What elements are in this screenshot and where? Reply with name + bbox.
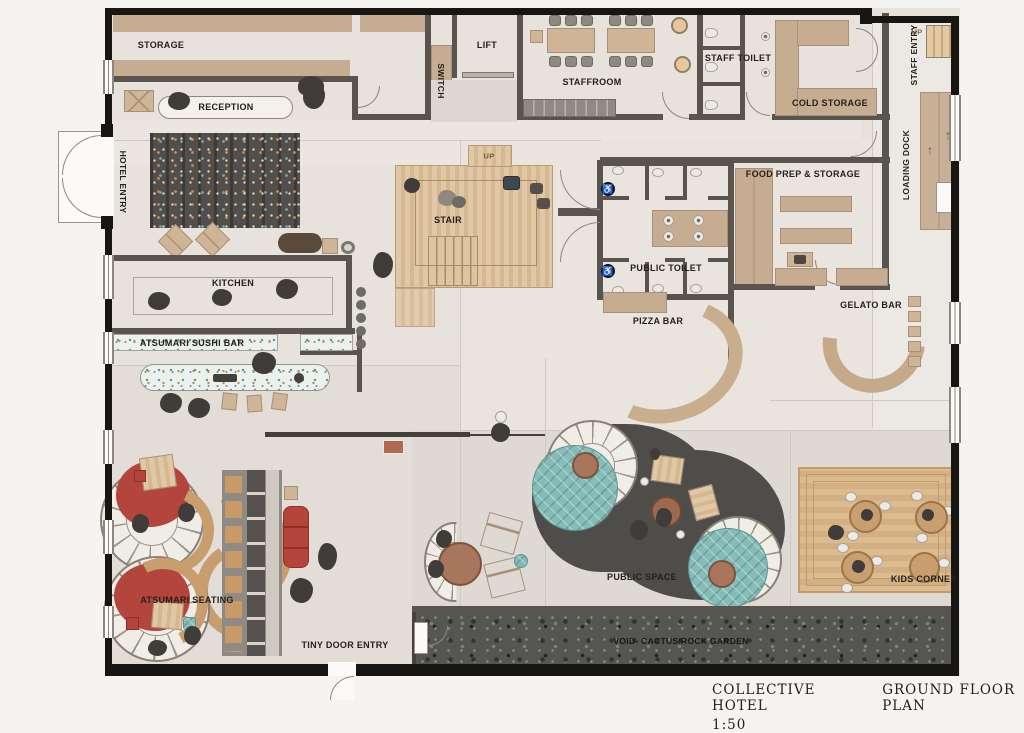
staffroom-table [607,28,655,53]
cushion [134,470,146,482]
toilet [690,284,702,293]
accessible-icon: ♿ [601,264,615,278]
toilet [612,166,624,175]
basin [693,215,704,226]
chair [565,56,577,67]
label-staffroom: STAFFROOM [562,77,621,87]
chair [609,56,621,67]
stall-wall [708,258,728,262]
red-sofa [283,506,309,568]
stall-wall [603,258,629,262]
floor-plan-page: { "title": { "project": "COLLECTIVE HOTE… [0,0,1024,724]
coldstorage-counter [797,20,849,46]
toilet [705,62,718,72]
stool [221,392,238,410]
label-kitchen: KITCHEN [212,278,254,288]
kids-chair [841,583,853,593]
chair [641,15,653,26]
label-sushi-bar: ATSUMARI SUSHI BAR [140,338,244,348]
label-atsumari-seating: ATSUMARI SEATING [140,595,233,605]
stool [908,356,921,367]
label-public-space: PUBLIC SPACE [607,572,677,582]
toilet [705,28,718,38]
sushi-counter [300,334,353,351]
wall-kitchen-top [111,255,352,261]
label-lift: LIFT [477,40,497,50]
wall-lift-left [452,14,457,78]
basin [663,215,674,226]
wall-kitchen-down [357,328,362,392]
stall-divider [645,166,649,200]
stall-divider [703,46,740,50]
lockers [523,99,616,117]
crate-red [383,440,404,454]
mat [278,233,322,253]
chair [581,56,593,67]
chair [641,56,653,67]
cushion [126,617,139,630]
basin [693,231,704,242]
label-staff-stair-up: UP [911,28,922,37]
wall-topright2 [867,16,958,23]
kids-chair [837,543,849,553]
project-title: COLLECTIVE HOTEL [712,682,840,714]
crate [124,90,154,112]
window [103,520,114,554]
floor-joint [770,400,958,401]
desk-chair [298,76,324,96]
label-reception: RECEPTION [198,102,253,112]
bench-table-column [247,470,265,656]
side-table [530,30,543,43]
stool [908,296,921,307]
window [103,60,114,94]
label-gelato-bar: GELATO BAR [840,300,902,310]
pass-counter [836,268,888,286]
pass-counter [775,268,827,286]
foodprep-shelf [780,196,852,212]
chair [565,15,577,26]
entry-opening [103,137,114,216]
stall-wall [708,196,728,200]
label-stair: STAIR [434,215,462,225]
chair [676,530,685,539]
stall-wall [603,196,629,200]
label-tiny-door: TINY DOOR ENTRY [301,640,388,650]
label-loading-dock: LOADING DOCK [901,130,911,200]
chair [640,477,649,486]
accessible-icon: ♿ [601,182,615,196]
entry-rug [150,133,300,228]
stall-divider [703,82,740,86]
stair-appliance [530,183,543,194]
floor-joint [460,430,958,431]
stair-appliance [503,176,520,190]
stair-appliance [537,198,550,209]
kids-chair [845,492,857,502]
tiny-door-gap [328,662,356,676]
storage-shelf [360,15,428,32]
stool [908,341,921,352]
armchair [674,56,691,73]
bench-cushions [225,476,242,652]
wall-bottom [105,664,959,676]
tiny-door-arc [330,676,354,700]
window [103,255,114,299]
window [103,332,114,364]
wall-top [105,8,867,15]
dishwasher-icon [794,255,806,264]
label-food-prep: FOOD PREP & STORAGE [746,169,860,179]
stall-wall [665,258,685,262]
window [103,606,114,638]
label-hotel-entry: HOTEL ENTRY [118,151,128,214]
label-cold-storage: COLD STORAGE [792,98,868,108]
lift-door-sill [462,72,514,78]
stall-divider [683,166,687,200]
window [103,430,114,464]
door-knob [761,68,770,77]
label-staff-toilet: STAFF TOILET [705,53,771,63]
label-public-toilet: PUBLIC TOILET [630,263,702,273]
side-table [284,486,298,500]
kids-chair [916,533,928,543]
armchair [671,17,688,34]
chair [549,56,561,67]
window [949,302,961,344]
floor-plan: ↑ ↑ ♿ ♿ [0,0,1024,724]
chair [625,56,637,67]
stool [246,394,262,412]
storage-shelf [113,15,352,32]
chair [625,15,637,26]
basin [663,231,674,242]
wall-stafftoilet-inner [740,14,745,120]
chair [549,15,561,26]
label-pizza-bar: PIZZA BAR [633,316,683,326]
chair [581,15,593,26]
title-block: COLLECTIVE HOTEL GROUND FLOOR PLAN 1:50 [712,682,1024,733]
wall-right-block [882,13,889,290]
bar-equipment [213,374,237,382]
stair-extension [395,288,435,327]
wall-stafftoilet-left [697,14,703,120]
toilet [705,100,718,110]
pouf [514,554,528,568]
foodprep-counter [735,168,773,286]
round-table [708,560,736,588]
pot [356,287,366,297]
staffroom-table [547,28,595,53]
kids-chair [847,531,859,541]
label-stair-up: UP [483,152,494,161]
foodprep-shelf [780,228,852,244]
toilet [690,168,702,177]
floor-joint [790,430,791,608]
up-arrow-icon: ↑ [945,128,952,143]
label-void-garden: VOID- CACTUS/ROCK GARDEN [613,636,748,646]
bench-right-strip [266,470,279,656]
basket [322,238,338,254]
stool [908,311,921,322]
stool [908,326,921,337]
stool [271,392,288,411]
label-switch: SWITCH [436,63,446,98]
kids-chair [911,491,923,501]
window [949,387,961,443]
lamp [495,411,507,423]
drawing-title: GROUND FLOOR PLAN [882,682,1024,714]
booth-table [151,601,184,631]
round-table [438,542,482,586]
garden-door [414,622,428,654]
chair [609,15,621,26]
up-arrow-icon: ↑ [927,143,934,158]
label-kids-corner: KIDS CORNER [891,574,957,584]
wall-kitchen-right [346,255,352,334]
drawing-scale: 1:50 [712,717,1024,733]
toilet [652,168,664,177]
label-storage: STORAGE [138,40,184,50]
stall-wall [665,196,685,200]
bowl [341,241,355,254]
storage-shelf [113,60,350,77]
bar-knob [294,373,304,383]
sink-counter [652,210,728,247]
round-table [572,452,599,479]
door-knob [761,32,770,41]
partition-screen [265,432,470,437]
